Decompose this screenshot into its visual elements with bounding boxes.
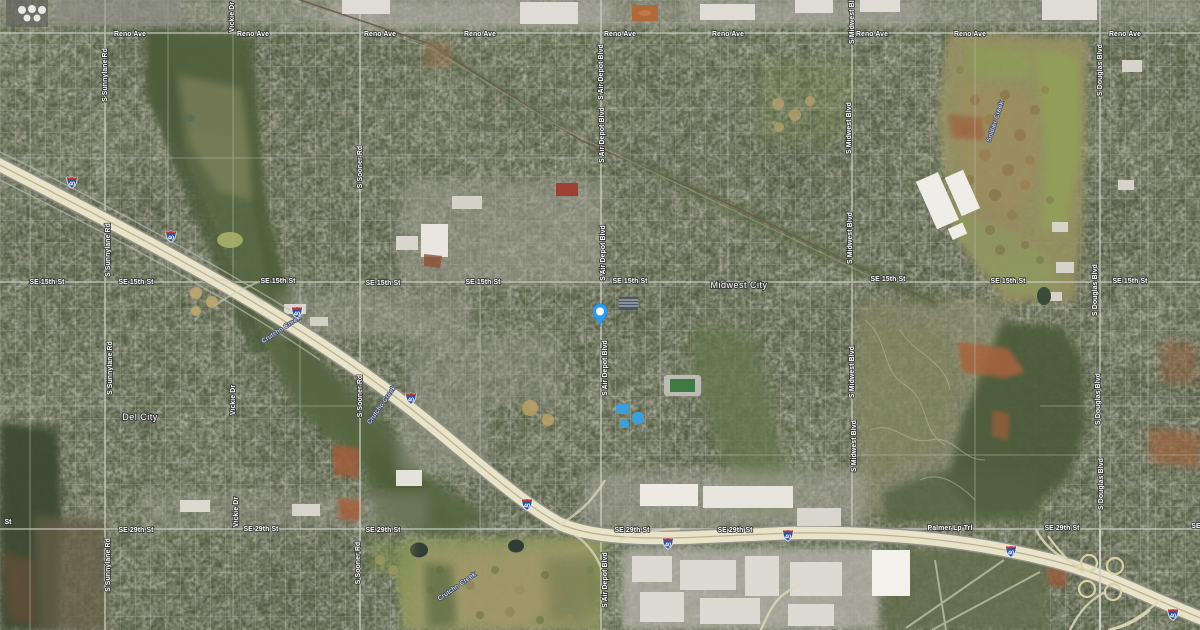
- svg-text:S Douglas Blvd: S Douglas Blvd: [1092, 264, 1099, 316]
- svg-text:SE 15th St: SE 15th St: [465, 279, 501, 286]
- svg-text:Reno Ave: Reno Ave: [712, 31, 744, 38]
- svg-text:Vickie Dr: Vickie Dr: [230, 385, 237, 415]
- svg-text:Reno Ave: Reno Ave: [464, 31, 496, 38]
- svg-text:S Midwest Blvd: S Midwest Blvd: [846, 102, 853, 154]
- svg-text:Reno Ave: Reno Ave: [604, 31, 636, 38]
- svg-text:SE 29th St: SE 29th St: [1044, 525, 1080, 532]
- svg-text:S Douglas Blvd: S Douglas Blvd: [1095, 373, 1102, 425]
- svg-text:Midwest City: Midwest City: [710, 280, 767, 290]
- svg-text:Reno Ave: Reno Ave: [856, 31, 888, 38]
- svg-text:SE 29th St: SE 29th St: [243, 526, 279, 533]
- svg-text:SE 15th St: SE 15th St: [990, 278, 1026, 285]
- svg-text:S Midwest Blvd: S Midwest Blvd: [847, 212, 854, 264]
- svg-text:SE 15th St: SE 15th St: [612, 278, 648, 285]
- svg-text:S Midwest Blvd: S Midwest Blvd: [849, 0, 856, 44]
- svg-text:Vickie Dr: Vickie Dr: [233, 497, 240, 527]
- svg-text:S Sunnylane Rd: S Sunnylane Rd: [107, 341, 114, 395]
- svg-text:SE: SE: [1191, 523, 1200, 530]
- svg-text:S Sooner Rd: S Sooner Rd: [357, 375, 364, 417]
- svg-text:SE 29th St: SE 29th St: [365, 527, 401, 534]
- svg-text:SE 15th St: SE 15th St: [260, 278, 296, 285]
- svg-text:SE 15th St: SE 15th St: [365, 280, 401, 287]
- svg-text:SE 15th St: SE 15th St: [29, 279, 65, 286]
- svg-text:SE 29th St: SE 29th St: [717, 527, 753, 534]
- svg-text:S Midwest Blvd: S Midwest Blvd: [851, 420, 858, 472]
- svg-text:Reno Ave: Reno Ave: [114, 31, 146, 38]
- svg-text:S Sooner Rd: S Sooner Rd: [355, 542, 362, 584]
- svg-text:S Air Depot Blvd: S Air Depot Blvd: [598, 44, 605, 100]
- svg-text:SE 15th St: SE 15th St: [118, 279, 154, 286]
- svg-text:S Air Depot Blvd: S Air Depot Blvd: [602, 552, 609, 608]
- svg-text:S Air Depot Blvd: S Air Depot Blvd: [600, 225, 607, 281]
- svg-text:Palmer Lp Trl: Palmer Lp Trl: [928, 525, 973, 532]
- svg-text:S Sunnylane Rd: S Sunnylane Rd: [105, 223, 112, 277]
- svg-text:S Douglas Blvd: S Douglas Blvd: [1098, 458, 1105, 510]
- svg-text:S Sunnylane Rd: S Sunnylane Rd: [105, 538, 112, 592]
- svg-text:Del City: Del City: [122, 412, 158, 422]
- svg-text:Reno Ave: Reno Ave: [364, 31, 396, 38]
- svg-text:S Sunnylane Rd: S Sunnylane Rd: [102, 48, 109, 102]
- svg-text:S Air Depot Blvd: S Air Depot Blvd: [599, 107, 606, 163]
- svg-text:S Sooner Rd: S Sooner Rd: [357, 146, 364, 188]
- svg-text:Reno Ave: Reno Ave: [1109, 31, 1141, 38]
- svg-text:S Air Depot Blvd: S Air Depot Blvd: [602, 340, 609, 396]
- svg-text:S Douglas Blvd: S Douglas Blvd: [1097, 44, 1104, 96]
- svg-text:SE 15th St: SE 15th St: [870, 276, 906, 283]
- svg-text:SE 29th St: SE 29th St: [118, 527, 154, 534]
- svg-text:SE 15th St: SE 15th St: [1112, 278, 1148, 285]
- svg-text:S Midwest Blvd: S Midwest Blvd: [849, 346, 856, 398]
- svg-text:Vickie Dr: Vickie Dr: [229, 2, 236, 32]
- svg-text:Reno Ave: Reno Ave: [954, 31, 986, 38]
- svg-text:SE 29th St: SE 29th St: [614, 527, 650, 534]
- svg-text:Reno Ave: Reno Ave: [237, 31, 269, 38]
- svg-text:St: St: [4, 519, 12, 526]
